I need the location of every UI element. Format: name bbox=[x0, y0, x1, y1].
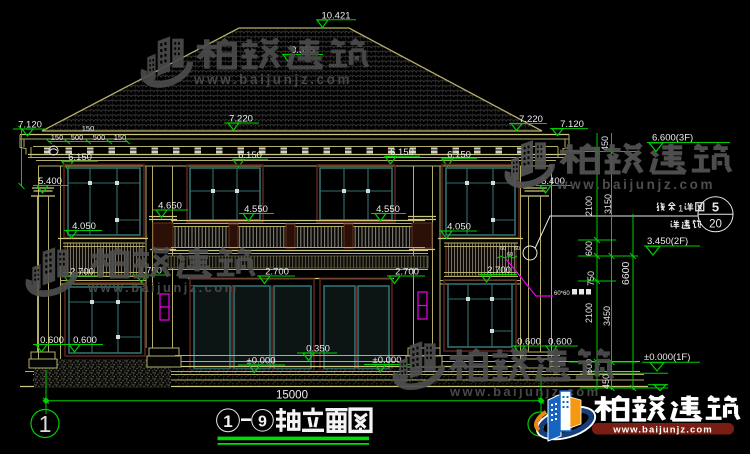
svg-text:3450: 3450 bbox=[602, 306, 612, 326]
svg-text:3150: 3150 bbox=[603, 194, 613, 214]
svg-text:150: 150 bbox=[82, 124, 95, 133]
svg-text:www.baijunjz.com: www.baijunjz.com bbox=[612, 424, 713, 435]
svg-text:600: 600 bbox=[584, 241, 594, 256]
svg-text:750: 750 bbox=[586, 271, 596, 286]
svg-text:±0.000(1F): ±0.000(1F) bbox=[644, 352, 690, 363]
svg-text:9: 9 bbox=[258, 414, 267, 431]
svg-text:www.baijunjz.com: www.baijunjz.com bbox=[556, 177, 715, 192]
svg-text:500: 500 bbox=[71, 133, 84, 142]
svg-text:60: 60 bbox=[514, 246, 520, 252]
svg-text:20: 20 bbox=[709, 219, 722, 231]
svg-text:1: 1 bbox=[678, 204, 683, 215]
svg-text:1: 1 bbox=[223, 412, 232, 431]
svg-text:5: 5 bbox=[712, 200, 719, 215]
svg-text:www.baijunjz.com: www.baijunjz.com bbox=[87, 280, 239, 295]
svg-text:150: 150 bbox=[51, 133, 64, 142]
svg-text:15000: 15000 bbox=[276, 390, 308, 402]
svg-text:60*60: 60*60 bbox=[554, 291, 570, 297]
svg-text:150: 150 bbox=[114, 133, 127, 142]
svg-text:6600: 6600 bbox=[620, 261, 632, 285]
svg-text:www.baijunjz.com: www.baijunjz.com bbox=[449, 384, 601, 399]
svg-text:www.baijunjz.com: www.baijunjz.com bbox=[193, 72, 352, 87]
svg-text:500: 500 bbox=[93, 133, 106, 142]
svg-text:60: 60 bbox=[500, 246, 506, 252]
svg-text:3.450(2F): 3.450(2F) bbox=[647, 236, 688, 247]
svg-text:2100: 2100 bbox=[584, 303, 594, 323]
svg-text:1: 1 bbox=[39, 411, 52, 437]
svg-text:6.600(3F): 6.600(3F) bbox=[652, 133, 693, 144]
svg-text:2100: 2100 bbox=[584, 196, 594, 216]
